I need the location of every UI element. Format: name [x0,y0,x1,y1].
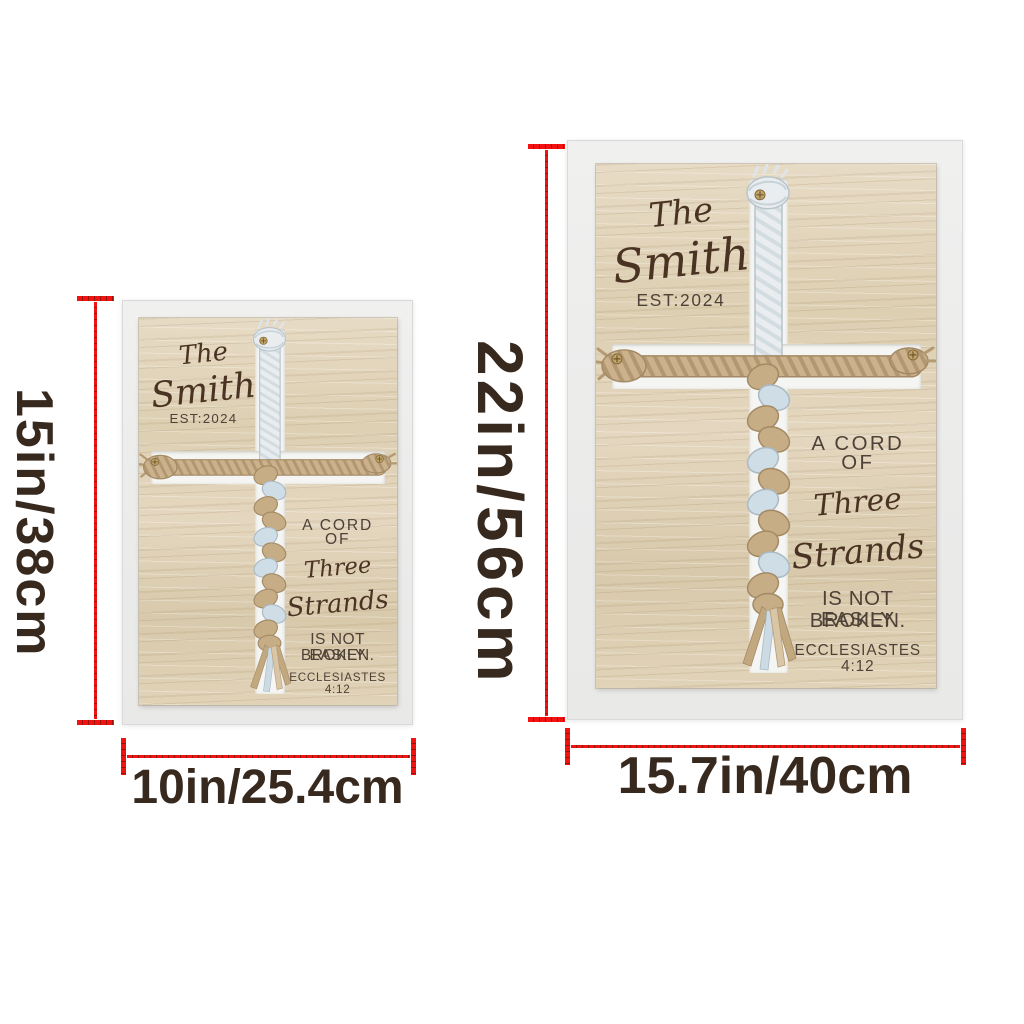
verse-line-broken: BROKEN. [281,648,395,664]
established-year-text: EST:2024 [613,292,749,309]
height-dimension-line-small [94,302,97,719]
width-dimension-label-large: 15.7in/40cm [567,750,963,802]
verse-line-broken: BROKEN. [783,611,933,631]
product-size-diagram: { "sign": { "family_prefix": "The", "fam… [0,0,1024,1024]
sign-board-large: The Smith EST:2024 A CORD OF Three Stran… [567,140,963,720]
verse-line-of: OF [783,453,933,473]
height-dimension-line-large [545,150,548,716]
wood-panel: The Smith EST:2024 A CORD OF Three Stran… [139,318,397,705]
established-year-text: EST:2024 [152,412,255,425]
width-dimension-line-small [127,755,410,758]
height-dimension-label-large: 22in/56cm [468,340,532,686]
height-dimension-label-small: 15in/38cm [8,388,60,658]
verse-line-of: OF [281,532,395,548]
sign-board-small: The Smith EST:2024 A CORD OF Three Stran… [122,300,413,725]
wood-panel: The Smith EST:2024 A CORD OF Three Stran… [596,164,936,688]
verse-reference-text: ECCLESIASTES 4:12 [281,672,395,695]
width-dimension-label-small: 10in/25.4cm [122,764,413,812]
verse-reference-text: ECCLESIASTES 4:12 [783,643,933,674]
